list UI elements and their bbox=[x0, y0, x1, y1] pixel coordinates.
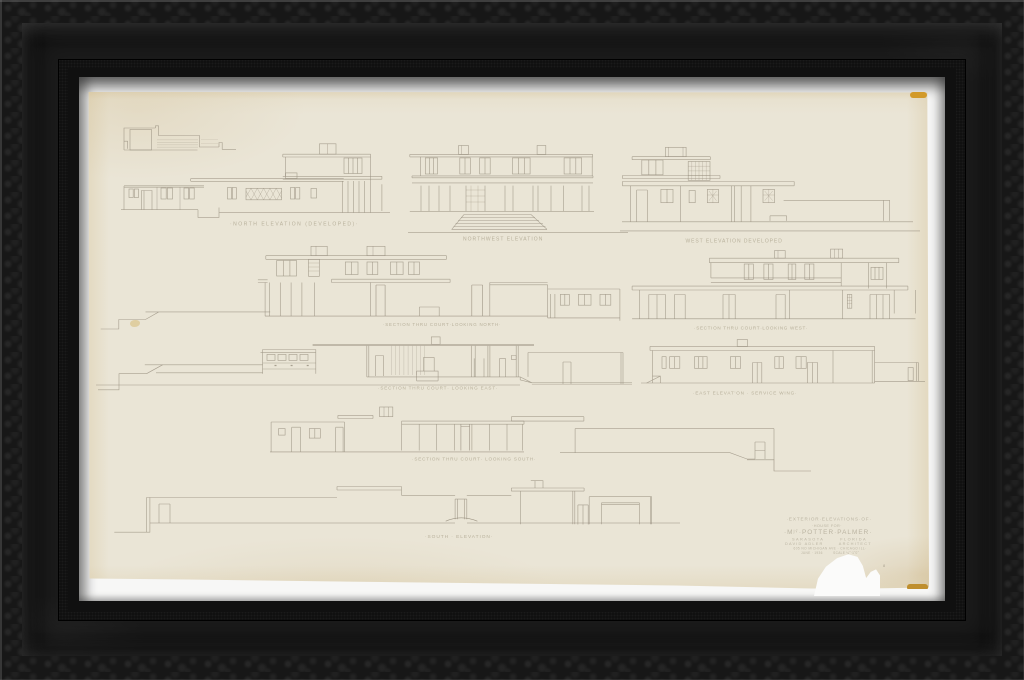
svg-text:·Mʲˤ·POTTER·PALMER·: ·Mʲˤ·POTTER·PALMER· bbox=[784, 529, 872, 536]
svg-text:WEST ELEVATION DEVELOPED: WEST ELEVATION DEVELOPED bbox=[686, 239, 783, 245]
svg-text:·EXTERIOR·ELEVATIONS·OF·: ·EXTERIOR·ELEVATIONS·OF· bbox=[787, 517, 872, 522]
svg-text:·SECTION THRU COURT· LOOKING S: ·SECTION THRU COURT· LOOKING SOUTH· bbox=[412, 456, 536, 461]
svg-text:·SECTION THRU COURT· LOOKING E: ·SECTION THRU COURT· LOOKING EAST· bbox=[378, 385, 498, 390]
svg-text:JUNE · 1936 SCALE ¼˝·1˝0˝: JUNE · 1936 SCALE ¼˝·1˝0˝ bbox=[801, 551, 860, 555]
svg-text:·SOUTH · ELEVATION·: ·SOUTH · ELEVATION· bbox=[425, 534, 493, 540]
svg-text:NORTHWEST ELEVATION: NORTHWEST ELEVATION bbox=[463, 237, 543, 243]
svg-text:·SECTION THRU COURT·LOOKING WE: ·SECTION THRU COURT·LOOKING WEST· bbox=[694, 326, 808, 331]
svg-text:·SECTION THRU COURT·LOOKING NO: ·SECTION THRU COURT·LOOKING NORTH· bbox=[383, 322, 501, 327]
svg-text:·EAST ELEVAT'ON · SERVICE WING: ·EAST ELEVAT'ON · SERVICE WING· bbox=[693, 391, 797, 396]
svg-text:·NORTH ELEVATION (DEVELOPED)·: ·NORTH ELEVATION (DEVELOPED)· bbox=[230, 222, 358, 228]
svg-text:8: 8 bbox=[883, 564, 885, 568]
svg-text:605 NO MICHIGAN AVE · CHICAGO: 605 NO MICHIGAN AVE · CHICAGO ILL· bbox=[794, 546, 867, 550]
svg-text:·HOUSE FOR·: ·HOUSE FOR· bbox=[812, 524, 842, 528]
